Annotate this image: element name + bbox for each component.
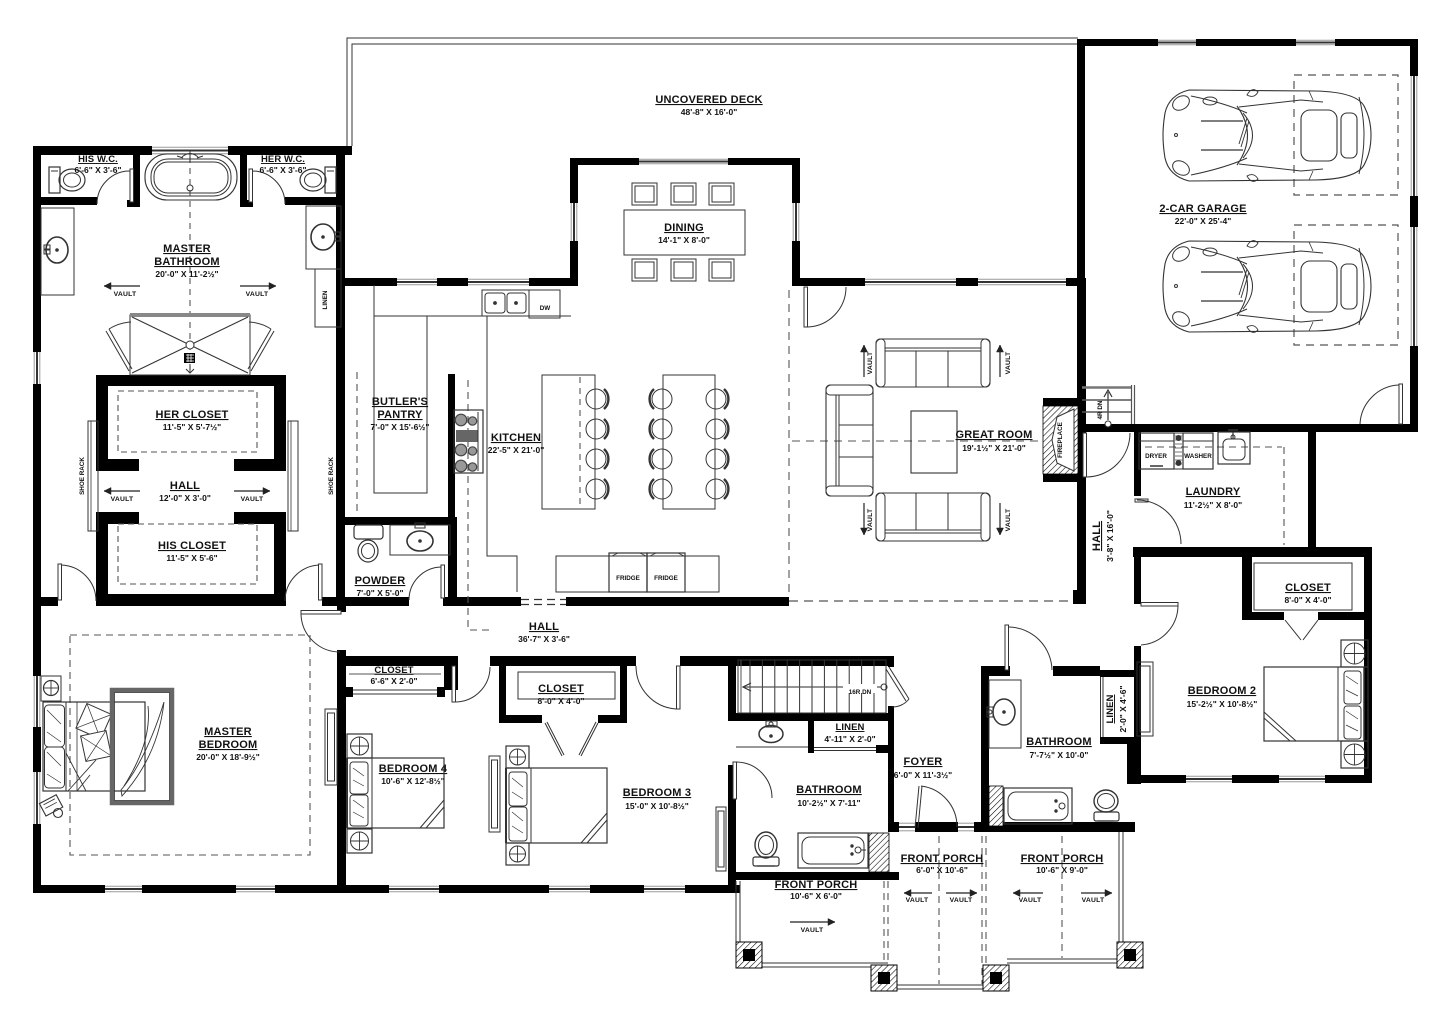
svg-text:2-CAR GARAGE: 2-CAR GARAGE xyxy=(1159,203,1246,215)
svg-text:LINEN: LINEN xyxy=(836,722,865,733)
svg-text:VAULT: VAULT xyxy=(867,351,874,374)
svg-text:22'-0" X 25'-4": 22'-0" X 25'-4" xyxy=(1175,216,1232,226)
svg-text:VAULT: VAULT xyxy=(906,897,929,904)
svg-text:10'-6" X 12'-8½": 10'-6" X 12'-8½" xyxy=(381,776,445,786)
svg-text:HER CLOSET: HER CLOSET xyxy=(156,409,229,421)
svg-text:15'-0" X 10'-8½": 15'-0" X 10'-8½" xyxy=(625,801,689,811)
svg-text:BATHROOM: BATHROOM xyxy=(1026,736,1092,748)
svg-text:BEDROOM 4: BEDROOM 4 xyxy=(379,763,448,775)
svg-text:CLOSET: CLOSET xyxy=(1285,582,1331,594)
svg-text:HIS CLOSET: HIS CLOSET xyxy=(158,540,226,552)
svg-text:8'-0" X 4'-0": 8'-0" X 4'-0" xyxy=(1284,595,1331,605)
svg-text:16R DN: 16R DN xyxy=(849,689,872,696)
svg-text:22'-5" X 21'-0": 22'-5" X 21'-0" xyxy=(488,445,545,455)
svg-text:8'-0" X 4'-0": 8'-0" X 4'-0" xyxy=(537,696,584,706)
svg-text:BATHROOM: BATHROOM xyxy=(796,784,862,796)
svg-text:48'-8" X 16'-0": 48'-8" X 16'-0" xyxy=(681,107,738,117)
svg-text:SHOE RACK: SHOE RACK xyxy=(79,457,86,495)
svg-text:UNCOVERED DECK: UNCOVERED DECK xyxy=(655,94,762,106)
svg-text:HIS W.C.: HIS W.C. xyxy=(78,154,118,165)
svg-text:11'-5" X 5'-7½": 11'-5" X 5'-7½" xyxy=(163,422,221,432)
svg-text:10'-6" X 9'-0": 10'-6" X 9'-0" xyxy=(1036,865,1088,875)
svg-text:SHOE RACK: SHOE RACK xyxy=(328,457,335,495)
svg-text:7'-0" X 5'-0": 7'-0" X 5'-0" xyxy=(356,588,403,598)
svg-text:HER W.C.: HER W.C. xyxy=(261,154,305,165)
svg-text:11'-2½" X 8'-0": 11'-2½" X 8'-0" xyxy=(1184,500,1242,510)
svg-text:6'-6" X 3'-6": 6'-6" X 3'-6" xyxy=(74,165,121,175)
svg-text:2'-0" X 4'-6": 2'-0" X 4'-6" xyxy=(1118,685,1128,732)
svg-text:14'-1" X 8'-0": 14'-1" X 8'-0" xyxy=(658,235,710,245)
svg-text:10'-2½" X 7'-11": 10'-2½" X 7'-11" xyxy=(797,798,860,808)
svg-text:FIREPLACE: FIREPLACE xyxy=(1057,422,1064,458)
svg-text:FRIDGE: FRIDGE xyxy=(616,575,640,582)
svg-text:DW: DW xyxy=(540,305,551,312)
svg-text:12'-0" X 3'-0": 12'-0" X 3'-0" xyxy=(159,493,211,503)
svg-text:VAULT: VAULT xyxy=(1005,351,1012,374)
svg-text:VAULT: VAULT xyxy=(1082,897,1105,904)
svg-text:WASHER: WASHER xyxy=(1184,453,1212,460)
svg-text:VAULT: VAULT xyxy=(1005,508,1012,531)
svg-text:20'-0" X 18'-9½": 20'-0" X 18'-9½" xyxy=(196,752,260,762)
svg-text:FRONT PORCH: FRONT PORCH xyxy=(775,879,858,891)
svg-text:6'-0" X 10'-6": 6'-0" X 10'-6" xyxy=(916,865,968,875)
svg-text:BEDROOM 2: BEDROOM 2 xyxy=(1188,685,1256,697)
svg-text:PANTRY: PANTRY xyxy=(377,409,423,421)
svg-text:VAULT: VAULT xyxy=(1019,897,1042,904)
svg-text:36'-7" X 3'-6": 36'-7" X 3'-6" xyxy=(518,634,570,644)
svg-text:20'-0" X 11'-2½": 20'-0" X 11'-2½" xyxy=(155,269,218,279)
svg-text:FRONT PORCH: FRONT PORCH xyxy=(901,853,984,865)
svg-text:VAULT: VAULT xyxy=(950,897,973,904)
svg-text:BATHROOM: BATHROOM xyxy=(154,256,220,268)
svg-text:4R DN: 4R DN xyxy=(1097,400,1104,419)
svg-text:4'-11" X 2'-0": 4'-11" X 2'-0" xyxy=(824,734,875,744)
svg-text:BUTLER'S: BUTLER'S xyxy=(372,396,428,408)
svg-text:LINEN: LINEN xyxy=(322,290,329,309)
svg-text:CLOSET: CLOSET xyxy=(538,683,584,695)
svg-text:VAULT: VAULT xyxy=(801,927,824,934)
svg-text:MASTER: MASTER xyxy=(204,726,252,738)
svg-text:7'-7½" X 10'-0": 7'-7½" X 10'-0" xyxy=(1030,750,1089,760)
svg-text:7'-0" X 15'-6½": 7'-0" X 15'-6½" xyxy=(371,422,430,432)
svg-text:KITCHEN: KITCHEN xyxy=(491,432,541,444)
svg-text:BEDROOM: BEDROOM xyxy=(199,739,258,751)
svg-text:VAULT: VAULT xyxy=(114,291,137,298)
svg-text:6'-6" X 2'-0": 6'-6" X 2'-0" xyxy=(370,676,417,686)
svg-text:DINING: DINING xyxy=(664,222,704,234)
svg-text:VAULT: VAULT xyxy=(111,496,134,503)
svg-text:DRYER: DRYER xyxy=(1145,453,1167,460)
svg-text:3'-8" X 16'-0": 3'-8" X 16'-0" xyxy=(1105,510,1115,562)
svg-text:15'-2½" X 10'-8½": 15'-2½" X 10'-8½" xyxy=(1187,699,1258,709)
svg-text:GREAT ROOM: GREAT ROOM xyxy=(956,429,1033,441)
svg-text:10'-6" X 6'-0": 10'-6" X 6'-0" xyxy=(790,891,842,901)
svg-text:POWDER: POWDER xyxy=(355,575,406,587)
svg-text:6'-0" X 11'-3½": 6'-0" X 11'-3½" xyxy=(894,770,952,780)
svg-text:19'-1½" X 21'-0": 19'-1½" X 21'-0" xyxy=(962,443,1026,453)
svg-text:VAULT: VAULT xyxy=(241,496,264,503)
svg-text:HALL: HALL xyxy=(170,480,200,492)
svg-text:BEDROOM 3: BEDROOM 3 xyxy=(623,787,691,799)
svg-text:FRONT PORCH: FRONT PORCH xyxy=(1021,853,1104,865)
svg-text:11'-5" X 5'-6": 11'-5" X 5'-6" xyxy=(166,553,217,563)
svg-text:LINEN: LINEN xyxy=(1105,694,1116,723)
svg-text:HALL: HALL xyxy=(1091,521,1103,551)
svg-text:VAULT: VAULT xyxy=(246,291,269,298)
svg-text:FRIDGE: FRIDGE xyxy=(654,575,678,582)
svg-text:VAULT: VAULT xyxy=(867,508,874,531)
svg-text:6'-6" X 3'-6": 6'-6" X 3'-6" xyxy=(259,165,306,175)
svg-text:MASTER: MASTER xyxy=(163,243,211,255)
svg-text:HALL: HALL xyxy=(529,621,559,633)
svg-text:LAUNDRY: LAUNDRY xyxy=(1186,486,1241,498)
svg-text:FOYER: FOYER xyxy=(904,756,943,768)
